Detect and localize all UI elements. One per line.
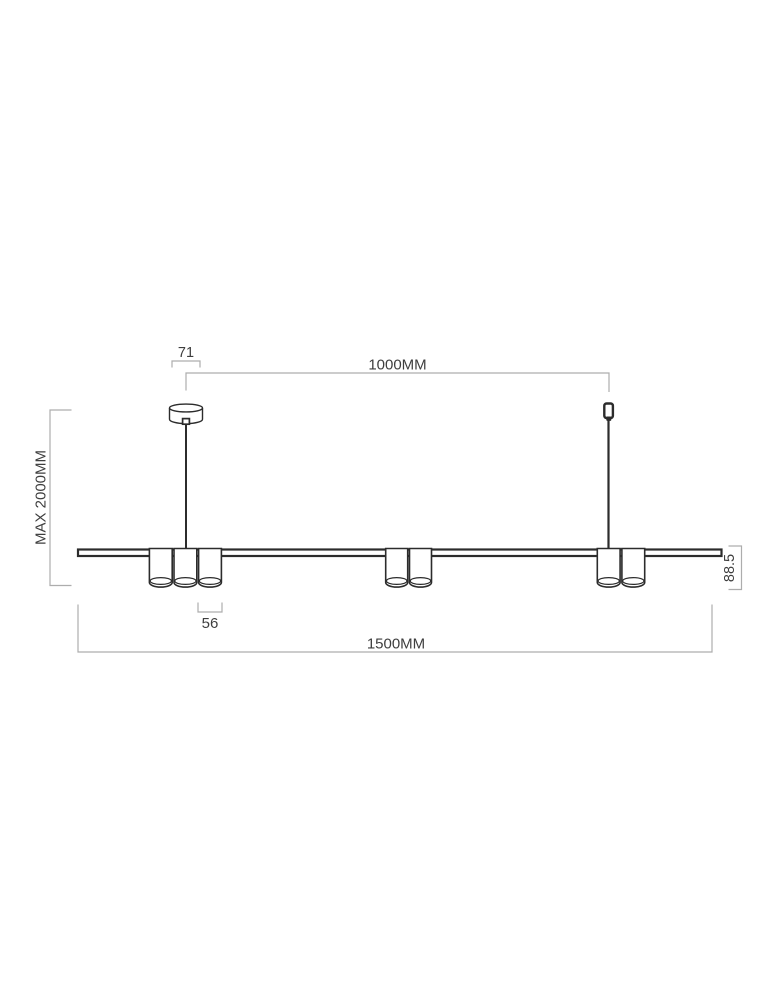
cable-gripper [604,404,613,421]
lamp-shade [410,549,432,588]
lamp-shade [199,549,222,588]
lamp-shade [149,549,172,588]
shade-group-left [149,549,221,588]
dimension-canopy-width: 71 [172,345,200,368]
shade-diameter-bracket [198,603,222,613]
dimension-total-length: 1500MM [78,605,712,653]
dimension-max-height: MAX 2000MM [33,410,72,586]
canopy-width-bracket [172,361,200,368]
shade-diameter-label: 56 [202,615,219,632]
gripper-body [604,404,613,419]
lamp-shade [386,549,408,588]
total-length-label: 1500MM [367,636,425,653]
technical-drawing-page: 71 1000MM MAX 2000MM 88.5 56 1500MM [0,0,774,1000]
canopy-top [170,404,203,412]
max-height-label: MAX 2000MM [33,450,50,545]
shade-height-label: 88.5 [722,554,738,582]
dimension-shade-diameter: 56 [198,603,222,633]
lamp-shade [174,549,197,588]
pendant-lamp-dimension-drawing: 71 1000MM MAX 2000MM 88.5 56 1500MM [0,0,774,1000]
canopy-width-label: 71 [178,345,194,361]
dimension-suspension-spacing: 1000MM [186,357,609,393]
max-height-line [50,410,72,586]
dimension-shade-height: 88.5 [722,546,742,590]
canopy-cable-nub [183,419,190,425]
lamp-shade [622,549,645,588]
gripper-nub [606,417,611,421]
lamp-shade [597,549,620,588]
suspension-spacing-line [186,373,609,392]
suspension-spacing-label: 1000MM [368,357,426,374]
